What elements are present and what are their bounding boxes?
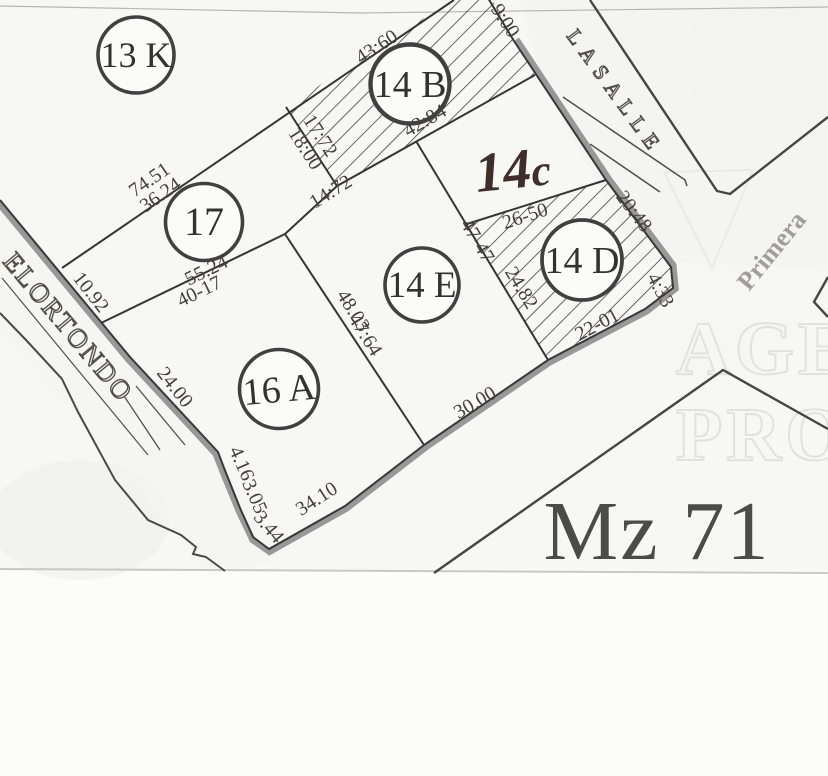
svg-text:14 D: 14 D — [545, 240, 620, 282]
svg-text:14 E: 14 E — [388, 265, 457, 306]
svg-text:16 A: 16 A — [241, 366, 318, 414]
svg-text:14c: 14c — [472, 135, 554, 205]
svg-text:Mz 71: Mz 71 — [544, 485, 771, 578]
svg-text:14 B: 14 B — [374, 64, 447, 106]
svg-text:AGE: AGE — [676, 307, 828, 391]
svg-text:PRO: PRO — [676, 393, 828, 477]
svg-text:13 K: 13 K — [101, 35, 172, 75]
svg-text:17: 17 — [184, 199, 224, 244]
